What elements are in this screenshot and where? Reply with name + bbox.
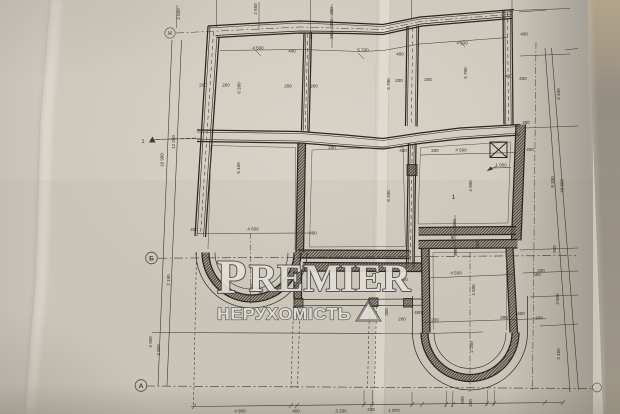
svg-text:400: 400 bbox=[190, 227, 198, 232]
svg-text:5 700: 5 700 bbox=[463, 67, 468, 79]
svg-text:REMIER: REMIER bbox=[249, 257, 411, 300]
svg-text:18 860: 18 860 bbox=[560, 179, 565, 193]
svg-text:2 550: 2 550 bbox=[253, 3, 258, 15]
svg-text:200: 200 bbox=[199, 83, 207, 88]
svg-text:4 500: 4 500 bbox=[455, 148, 467, 153]
svg-text:3 330: 3 330 bbox=[335, 409, 347, 414]
svg-text:400: 400 bbox=[396, 52, 404, 57]
svg-text:НЕРУХОМІСТЬ: НЕРУХОМІСТЬ bbox=[217, 305, 351, 324]
svg-text:6 400: 6 400 bbox=[556, 88, 561, 100]
svg-text:200: 200 bbox=[535, 316, 543, 321]
svg-text:200: 200 bbox=[460, 396, 465, 404]
svg-text:1: 1 bbox=[141, 139, 144, 145]
svg-text:4 500: 4 500 bbox=[247, 227, 259, 232]
svg-text:А: А bbox=[139, 383, 144, 390]
svg-text:200: 200 bbox=[395, 78, 403, 83]
svg-text:400: 400 bbox=[522, 120, 530, 125]
svg-text:4 900: 4 900 bbox=[468, 180, 473, 192]
svg-text:4 900: 4 900 bbox=[234, 409, 246, 414]
svg-text:200: 200 bbox=[328, 145, 336, 150]
svg-text:2 190: 2 190 bbox=[166, 274, 171, 286]
svg-text:6 200: 6 200 bbox=[237, 82, 242, 94]
svg-text:4 500: 4 500 bbox=[450, 271, 462, 276]
svg-text:200: 200 bbox=[310, 84, 318, 89]
svg-text:1.000: 1.000 bbox=[495, 163, 507, 168]
svg-text:300: 300 bbox=[384, 308, 389, 316]
svg-text:400: 400 bbox=[520, 32, 528, 37]
svg-text:P: P bbox=[217, 251, 246, 304]
svg-text:4 500: 4 500 bbox=[252, 46, 264, 51]
svg-text:200: 200 bbox=[424, 77, 432, 82]
svg-text:200: 200 bbox=[500, 315, 508, 320]
svg-text:400: 400 bbox=[505, 74, 513, 79]
svg-text:3 950: 3 950 bbox=[156, 344, 161, 356]
svg-text:200: 200 bbox=[452, 219, 457, 227]
svg-text:400: 400 bbox=[292, 409, 300, 414]
svg-text:200: 200 bbox=[222, 83, 230, 88]
svg-text:4 500: 4 500 bbox=[471, 284, 476, 296]
svg-text:1 970: 1 970 bbox=[388, 408, 400, 413]
svg-text:200: 200 bbox=[329, 31, 334, 39]
svg-text:5 450: 5 450 bbox=[236, 162, 241, 174]
svg-text:200: 200 bbox=[453, 248, 458, 256]
svg-text:3 950: 3 950 bbox=[148, 336, 153, 348]
svg-text:16 960: 16 960 bbox=[160, 153, 165, 167]
svg-text:400: 400 bbox=[526, 147, 534, 152]
svg-text:200: 200 bbox=[398, 317, 406, 322]
svg-text:200: 200 bbox=[284, 84, 292, 89]
svg-text:8 300: 8 300 bbox=[550, 176, 555, 188]
svg-text:Б: Б bbox=[149, 255, 154, 262]
svg-text:5 700: 5 700 bbox=[386, 78, 391, 90]
svg-text:12 200: 12 200 bbox=[171, 135, 176, 149]
svg-text:950: 950 bbox=[552, 245, 557, 253]
svg-text:2 450: 2 450 bbox=[556, 348, 561, 360]
svg-text:4 500: 4 500 bbox=[456, 41, 468, 46]
svg-text:400: 400 bbox=[468, 399, 473, 407]
svg-text:400: 400 bbox=[517, 311, 525, 316]
svg-text:3 600: 3 600 bbox=[555, 293, 560, 305]
svg-text:400: 400 bbox=[399, 148, 407, 153]
svg-text:200: 200 bbox=[431, 318, 439, 323]
svg-text:400: 400 bbox=[533, 272, 541, 277]
svg-text:200: 200 bbox=[329, 19, 334, 27]
svg-text:Ж: Ж bbox=[167, 31, 173, 37]
svg-text:2 250: 2 250 bbox=[469, 341, 474, 353]
svg-text:430: 430 bbox=[367, 407, 375, 412]
svg-text:200: 200 bbox=[450, 234, 455, 242]
svg-text:200: 200 bbox=[329, 7, 334, 15]
svg-text:200: 200 bbox=[519, 76, 527, 81]
svg-text:400: 400 bbox=[309, 231, 317, 236]
svg-text:400: 400 bbox=[288, 49, 296, 54]
svg-text:6 100: 6 100 bbox=[386, 190, 391, 202]
svg-text:200: 200 bbox=[431, 148, 439, 153]
svg-text:400: 400 bbox=[414, 310, 422, 315]
svg-text:400: 400 bbox=[475, 241, 480, 249]
svg-text:5 700: 5 700 bbox=[357, 48, 369, 53]
svg-text:2 550: 2 550 bbox=[176, 8, 181, 20]
svg-text:1: 1 bbox=[452, 194, 456, 201]
